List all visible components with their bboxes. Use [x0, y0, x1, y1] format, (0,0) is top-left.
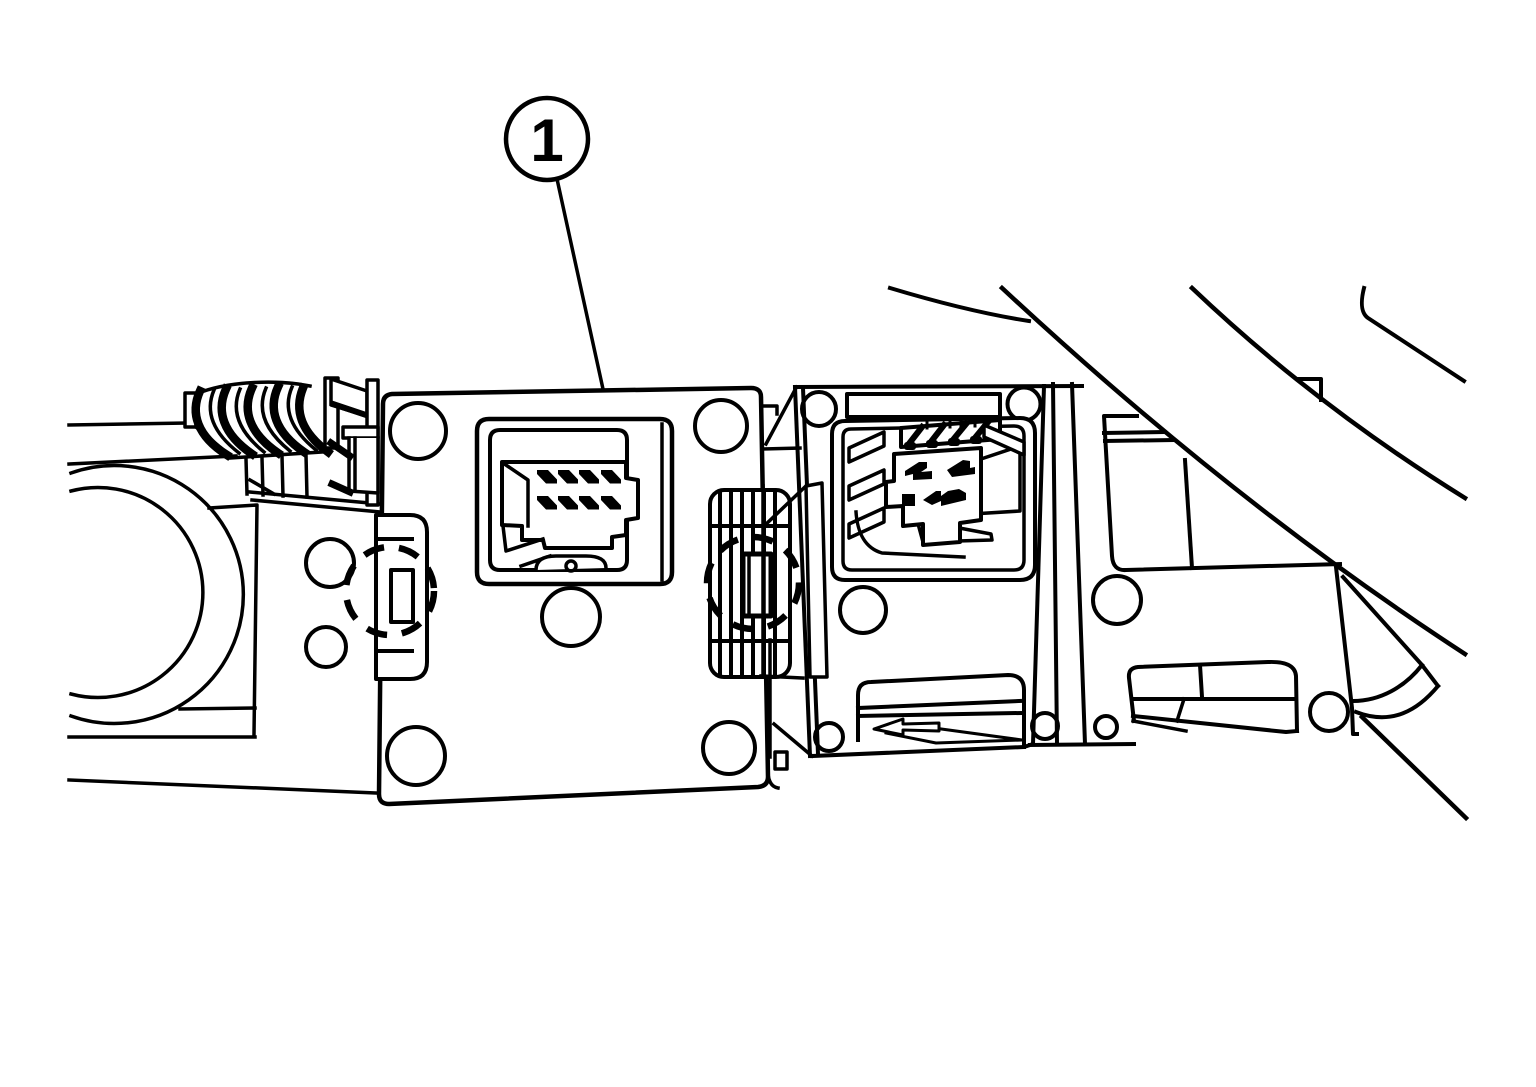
- svg-text:1: 1: [530, 107, 563, 174]
